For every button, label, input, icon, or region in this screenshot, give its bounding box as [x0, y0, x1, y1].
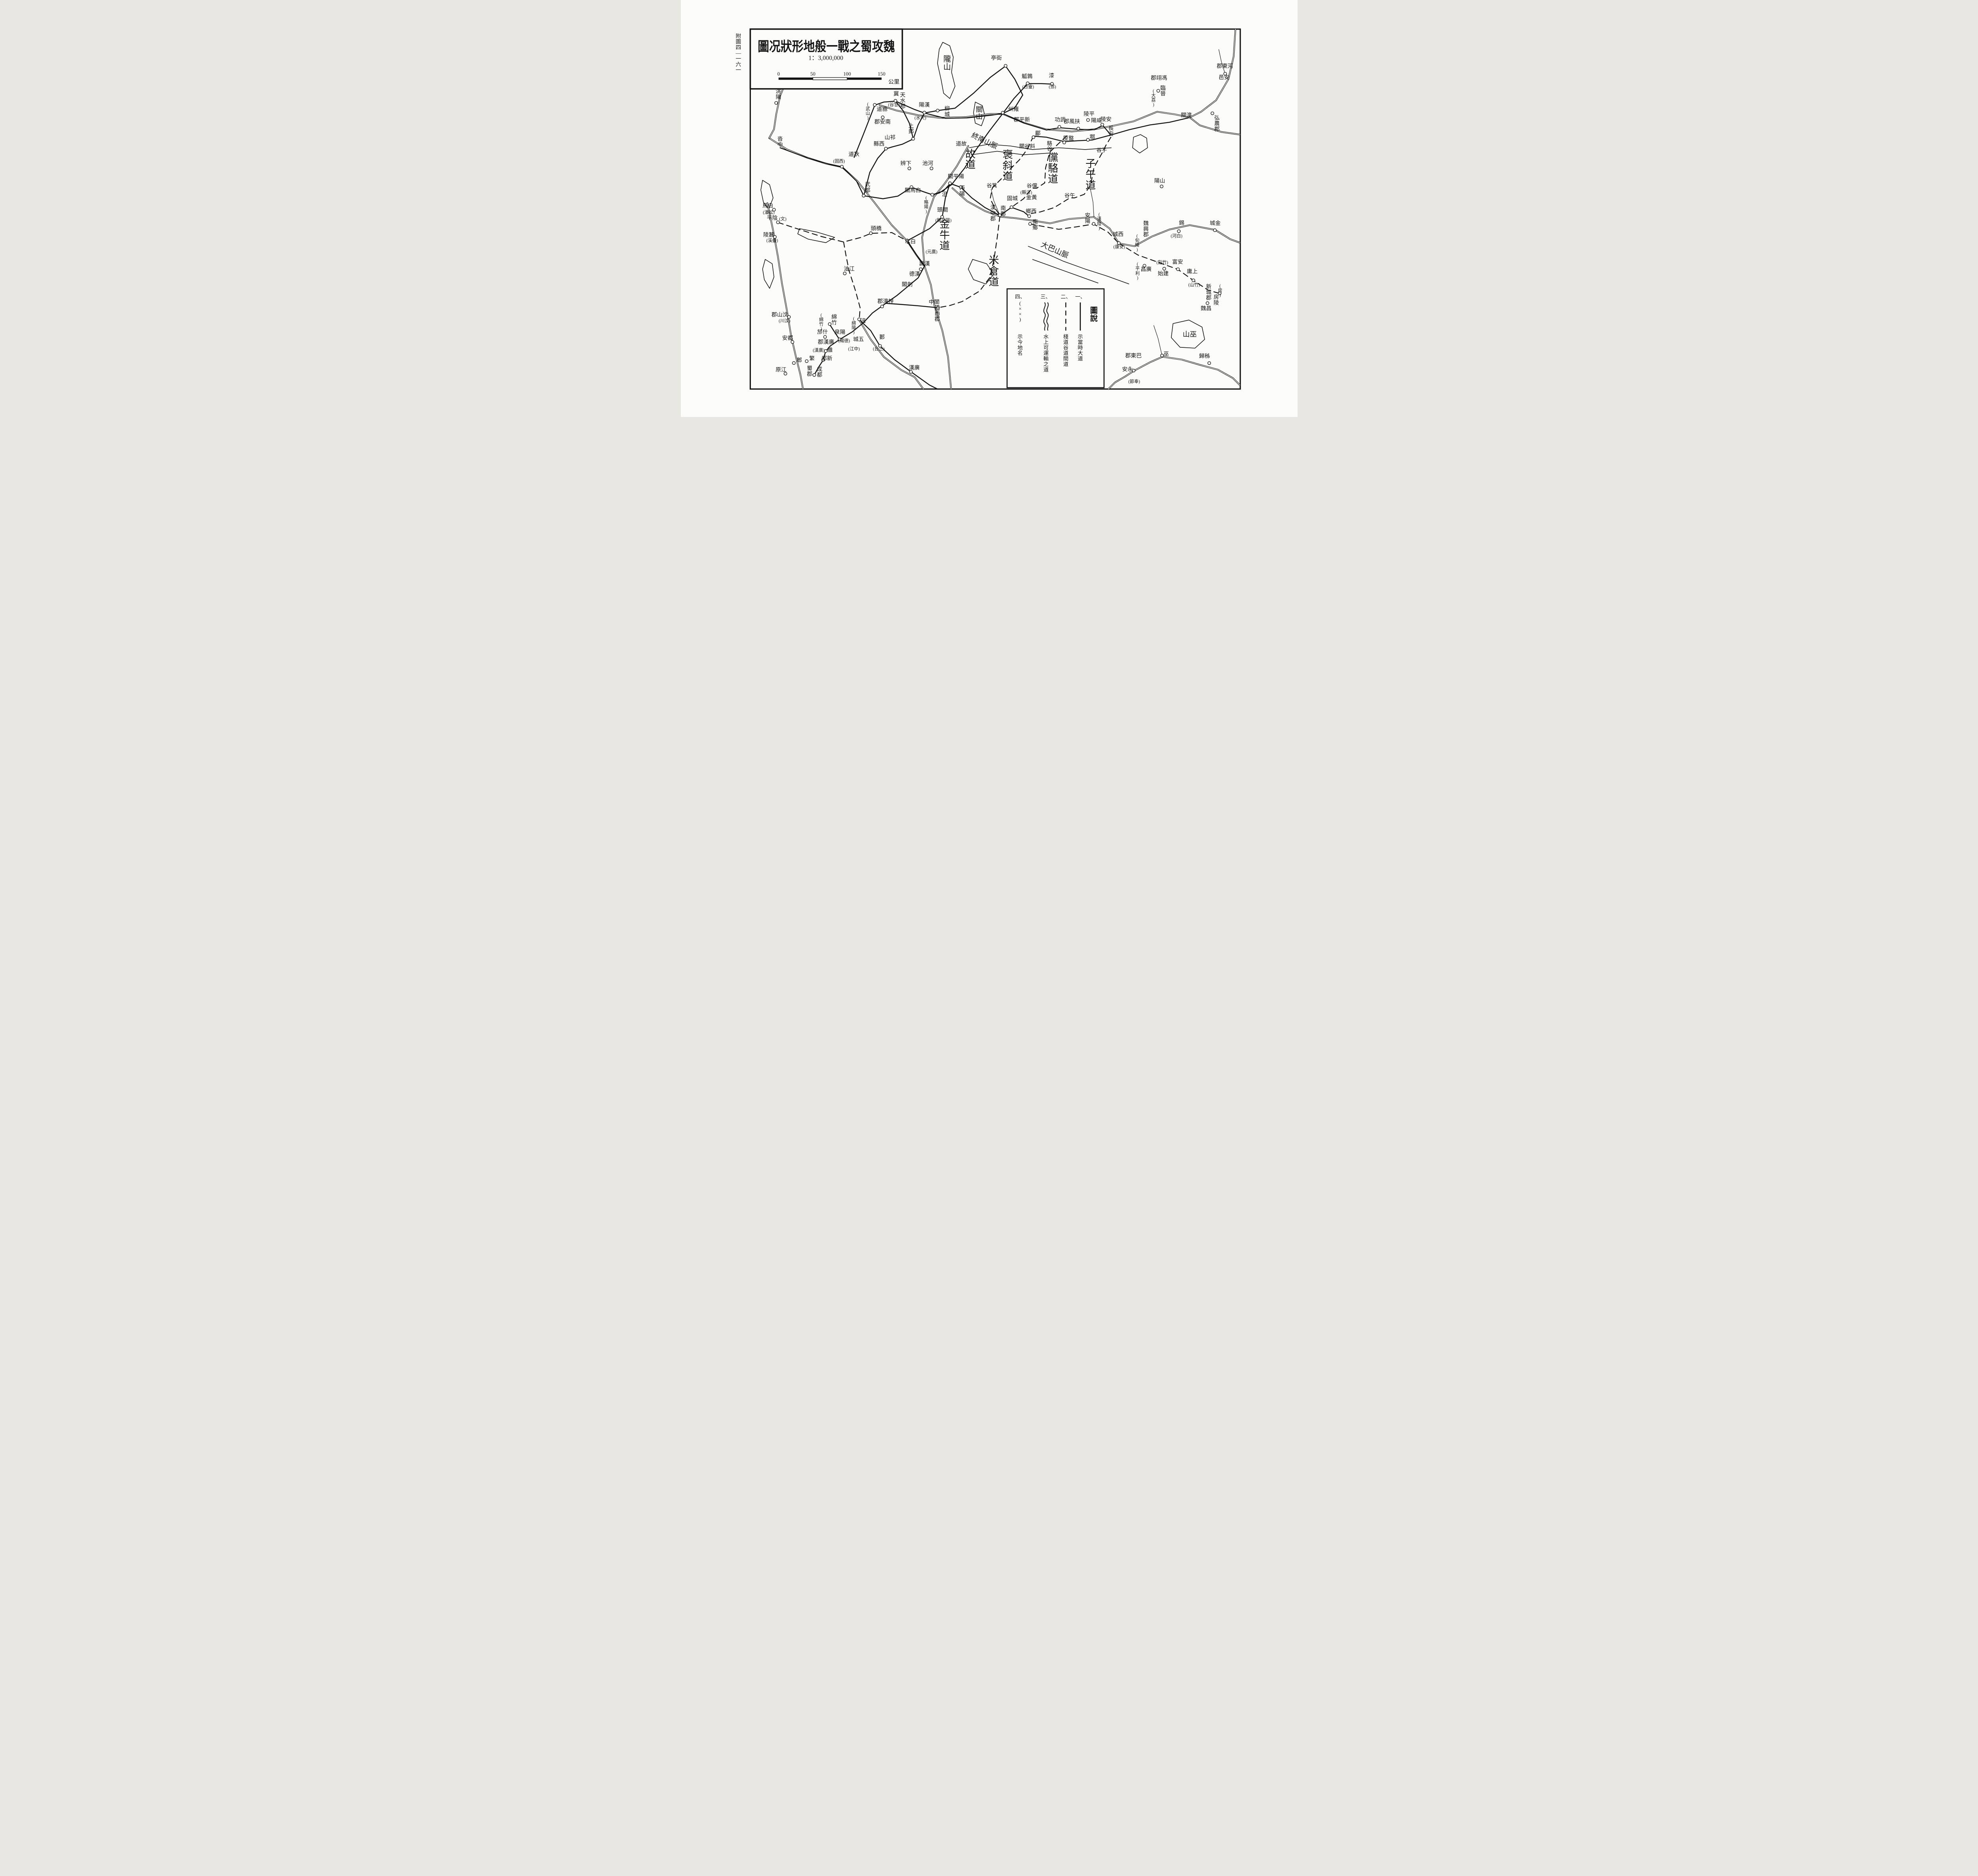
river-channel-4 [769, 138, 925, 266]
legend-num-1: 一、 [1075, 294, 1085, 300]
place-label-漆: 漆 [1049, 72, 1054, 78]
place-1-沓中: 沓中 [777, 136, 783, 148]
place-label-廣漢: 漢廣 [909, 364, 920, 371]
place-label-陽平關: 關平陽 [947, 173, 964, 179]
place-31-漆: 漆(邠) [1049, 72, 1056, 89]
legend-label-3: 水上可運輸之道 [1043, 334, 1048, 373]
modern-name-白河: (河白) [1171, 233, 1182, 239]
place-70-金牛道: 金牛道 [939, 219, 949, 252]
place-label-金城: 城金 [1210, 220, 1221, 226]
place-88-新都: 都新 [821, 356, 832, 362]
river-channel-5 [1108, 357, 1239, 389]
place-25-街亭: 亭街 [991, 55, 1007, 67]
stream-11 [1154, 325, 1162, 355]
place-29-雍州: 州雍 [1001, 106, 1019, 114]
place-marker-南鄉 [1029, 222, 1032, 225]
place-6-蠶陵: 陵蠶(溪疊) [763, 232, 778, 243]
place-marker-廣漢 [909, 370, 912, 373]
place-marker-汶山郡 [787, 315, 790, 318]
place-label-陰平: 平陰 [767, 215, 778, 221]
modern-name-旬陽: (旬陽) [1135, 234, 1139, 252]
place-marker-橋頭 [869, 232, 872, 235]
place-0-洮陽: 洮陽 [775, 89, 781, 104]
place-marker-沮 [930, 193, 934, 196]
map-page: 附圖四—一六一 洮陽沓中道狄(固西)馬白(潘松)平陰(文)陵蠶(溪疊)郡山汶(川… [681, 0, 1298, 417]
place-81-涪: 涪(綿陽) [851, 316, 866, 335]
place-58-午谷: 谷午 [1064, 192, 1075, 198]
place-95-廣漢: 漢廣 [909, 364, 920, 373]
margin-label: 附圖四—一六一 [735, 33, 741, 73]
place-103-竹谿: (谿竹) [1156, 260, 1168, 270]
modern-name-甘谷: (谷甘) [888, 102, 900, 108]
place-98-魏興郡: 魏興郡(旬陽) [1135, 220, 1148, 252]
place-label-雍州: 州雍 [1008, 106, 1019, 112]
legend-label-1: 示當時大道 [1078, 334, 1083, 362]
place-label-安陵: 陵安 [1101, 116, 1112, 122]
place-label-南安郡: 郡安南 [874, 119, 890, 125]
place-label-蠶陵: 陵蠶 [763, 232, 774, 238]
place-marker-什邡 [823, 335, 826, 339]
modern-name-天水: (水天) [914, 115, 926, 120]
place-101-上庸: 庸上(山竹) [1186, 268, 1200, 287]
place-label-魏興郡: 魏興郡 [1143, 220, 1148, 238]
place-label-午谷: 谷午 [1064, 192, 1075, 198]
place-marker-武山 [873, 103, 876, 106]
place-label-新都: 都新 [821, 356, 832, 362]
place-label-西鄉: 鄉西 [1025, 208, 1036, 214]
place-marker-下辨 [908, 167, 911, 170]
place-label-綿竹: 綿竹 [831, 314, 837, 326]
place-marker-竹谿 [1163, 267, 1166, 270]
place-label-柳城: 柳城 [944, 105, 950, 117]
place-73-白水: 水白 [905, 239, 916, 244]
byway-dashed-26 [778, 222, 907, 242]
place-51-斜谷關: 關谷斜 [1019, 143, 1035, 149]
place-39-盩厔: 厔盩 [1063, 135, 1074, 144]
place-40-郿: 郿 [1032, 130, 1040, 138]
place-marker-雒 [824, 350, 827, 353]
place-label-平陵: 陵平 [1084, 111, 1095, 117]
place-75-漢德: 德漢 [909, 271, 920, 277]
map-scale-ratio: 1：3,000,000 [808, 55, 843, 61]
modern-name-竹山: (山竹) [1188, 282, 1200, 288]
place-22-南安郡: 郡安南 [874, 119, 890, 125]
place-label-河池: 池河 [922, 160, 933, 166]
modern-name-廣漢: (漢廣) [813, 347, 824, 353]
place-35-咸陽: 陽咸 [1091, 117, 1102, 123]
place-104-廣昌: 昌廣(平利) [1135, 262, 1151, 280]
place-91-蜀郡: 蜀郡 [807, 366, 812, 377]
place-23-武山: (武山) [866, 102, 876, 121]
place-label-河東郡: 郡東河 [1216, 63, 1233, 69]
place-105-建始: 始建 [1158, 271, 1169, 277]
place-12-河池: 池河 [922, 160, 933, 170]
place-label-鶉觚: 觚鶉 [1021, 74, 1033, 80]
place-49-故道: 故道 [965, 148, 975, 171]
place-label-西城: 城西 [1112, 231, 1124, 237]
place-label-關山: 關山 [976, 106, 982, 120]
place-label-安富: 富安 [1172, 258, 1183, 265]
place-marker-梓潼郡 [881, 305, 884, 308]
place-marker-漢陽 [923, 111, 926, 114]
place-marker-街亭 [1004, 64, 1007, 68]
modern-name-略陽: (略陽) [924, 195, 928, 214]
place-45-河東郡: 郡東河 [1216, 63, 1233, 69]
place-marker-鶉觚 [1026, 82, 1029, 85]
place-20-天水郡: 天水郡 [900, 92, 906, 110]
place-label-汶山郡: 郡山汶 [771, 311, 788, 318]
place-label-巴東郡: 郡東巴 [1125, 353, 1142, 359]
place-59-山陽: 陽山 [1154, 178, 1165, 188]
place-marker-平陵 [1086, 118, 1089, 121]
modern-name-西固: (固西) [833, 159, 845, 164]
modern-name-綿竹: (綿竹) [819, 313, 823, 332]
place-marker-金城 [1213, 229, 1216, 232]
modern-name-汶川: (川汶) [779, 318, 790, 323]
place-label-房陵: 房陵 [1213, 294, 1219, 306]
place-label-儻谷: 谷儻 [1027, 183, 1037, 189]
place-marker-豲道 [881, 116, 884, 119]
place-24-隴山: 隴山 [943, 55, 951, 72]
place-112-巴東郡: 郡東巴 [1125, 353, 1142, 359]
place-label-南鄉: 南鄉 [1032, 219, 1038, 231]
place-5-陰平: 平陰(文) [767, 215, 786, 224]
place-marker-安陵 [1101, 123, 1104, 126]
place-label-郿: 郿 [1035, 130, 1040, 136]
byway-dashed-27 [843, 242, 860, 320]
place-marker-雍州 [1001, 111, 1004, 114]
place-2-狄道: 道狄 [848, 152, 859, 157]
place-label-咸陽: 陽咸 [1091, 117, 1102, 123]
place-71-米倉道: 米倉道 [989, 255, 999, 288]
place-marker-西縣 [884, 147, 887, 150]
place-label-臨晉: 臨晉 [1160, 85, 1165, 97]
modern-name-洋縣: (縣洋) [1020, 189, 1032, 195]
modern-name-文: (文) [779, 216, 786, 222]
scale-tick-100: 100 [843, 71, 851, 77]
place-label-繁: 繁 [809, 356, 815, 362]
place-label-白水: 水白 [905, 239, 916, 244]
place-marker-昌魏 [1206, 302, 1209, 305]
road-3 [1111, 118, 1188, 135]
modern-name-竹谿: (谿竹) [1156, 260, 1168, 265]
place-label-秭歸: 歸秭 [1199, 352, 1210, 359]
place-36-安陵: 陵安 [1101, 116, 1112, 126]
place-label-扶風郡: 郡風扶 [1064, 118, 1080, 124]
place-marker-河池 [930, 167, 933, 170]
place-label-終南山脈: 終南山脈 [970, 131, 999, 150]
place-label-黃金: 金黃 [1026, 195, 1037, 201]
place-marker-西城 [1117, 242, 1120, 245]
place-marker-郿 [1032, 136, 1035, 139]
road-9 [864, 139, 913, 196]
river-7 [859, 320, 923, 389]
place-111-秭歸: 歸秭 [1199, 352, 1211, 364]
road-2 [924, 66, 1005, 113]
place-marker-郫 [792, 362, 795, 365]
place-label-駱谷: 駱谷 [1047, 140, 1052, 152]
place-17-上邽: 上邽 [908, 123, 915, 140]
place-label-陽泉: 泉陽 [834, 329, 845, 335]
place-label-巴西郡: 巴西郡 [934, 305, 940, 322]
place-label-成都: 成都 [817, 366, 822, 378]
place-84-綿竹: (綿竹) [819, 313, 823, 332]
place-marker-盩厔 [1063, 141, 1066, 144]
place-label-新城郡: 新城郡 [1206, 284, 1211, 301]
place-43-潼關: 關潼 [1181, 112, 1192, 118]
byway-dashed-28 [1030, 224, 1118, 243]
place-62-漢中郡: 漢中郡 [990, 205, 996, 222]
place-label-豲道: 道豲 [877, 106, 888, 112]
place-48-故道: 道故 [955, 141, 966, 147]
place-label-天水郡: 天水郡 [900, 92, 906, 110]
place-label-梓潼郡: 郡潼梓 [877, 298, 894, 304]
legend-label-4: 示今地名 [1017, 334, 1022, 356]
place-label-安陽: 安陽 [1085, 212, 1090, 224]
place-marker-成都 [813, 373, 816, 377]
place-label-蜀郡: 蜀郡 [807, 366, 812, 377]
place-marker-錫 [1177, 230, 1180, 233]
place-label-永安: 安永 [1122, 366, 1133, 372]
place-55-儻谷: 谷儻 [1027, 183, 1037, 189]
place-marker-陽平關 [948, 182, 951, 185]
place-37-長安: 長安 [1108, 125, 1114, 137]
place-46-安邑: 邑安 [1218, 72, 1230, 81]
place-label-白馬: 馬白 [762, 203, 773, 209]
place-21-豲道: 道豲 [877, 106, 888, 119]
place-marker-山陽 [1160, 185, 1163, 188]
place-label-箕谷: 谷箕 [987, 182, 997, 188]
river-4 [769, 138, 925, 266]
place-107-房陵: 房陵(房) [1213, 284, 1222, 306]
place-marker-扶風郡 [1076, 127, 1080, 130]
modern-name-廣元: (元廣) [925, 249, 937, 254]
place-marker-關頭 [940, 216, 944, 219]
place-label-武都: 武都 [865, 182, 870, 193]
place-57-子午道: 子午道 [1085, 158, 1095, 191]
place-80-巴西郡: 巴西郡 [934, 305, 940, 322]
place-label-巫山: 山巫 [1182, 330, 1197, 338]
place-marker-臨晉 [1157, 89, 1160, 93]
scale-tick-0: 0 [777, 71, 779, 77]
place-label-城固: 固城 [1007, 195, 1018, 201]
map-canvas: 附圖四—一六一 洮陽沓中道狄(固西)馬白(潘松)平陰(文)陵蠶(溪疊)郡山汶(川… [681, 0, 1298, 417]
place-label-閬中: 中閬 [928, 299, 940, 305]
place-76-劍閣: 閣劍 [902, 281, 913, 288]
place-label-江油: 油江 [843, 266, 854, 272]
place-label-南鄭: 南鄭 [1000, 205, 1006, 217]
place-label-郪: 郪 [879, 334, 885, 340]
legend-num-4: 四、 [1015, 294, 1025, 300]
place-109-巫山: 山巫 [1182, 330, 1197, 338]
scale-unit: 公里 [888, 79, 899, 85]
place-15-祁山: 山祁 [885, 135, 896, 140]
scale-tick-50: 50 [810, 71, 815, 77]
place-label-長安: 長安 [1108, 125, 1114, 137]
byway-dashed-29 [1119, 243, 1220, 294]
place-marker-綿竹 [828, 322, 831, 326]
place-label-祁山: 山祁 [885, 135, 896, 140]
place-66-西鄉: 鄉西 [1025, 208, 1036, 218]
place-marker-安富 [1176, 268, 1179, 271]
place-110-巫: 巫 [1160, 351, 1169, 357]
place-label-潼關: 關潼 [1181, 112, 1192, 118]
place-label-五城: 城五 [853, 336, 864, 342]
place-label-馮翊郡: 郡翊馮 [1150, 75, 1167, 81]
place-label-狄道: 道狄 [848, 152, 859, 157]
place-30-新平郡: 郡平新 [1014, 117, 1030, 123]
place-marker-武功 [1058, 125, 1061, 129]
place-83-綿竹: 綿竹 [828, 314, 837, 326]
place-marker-秭歸 [1207, 362, 1211, 365]
modern-name-大荔: (大荔) [1151, 89, 1156, 108]
place-106-新城郡: 新城郡 [1206, 284, 1211, 301]
modern-name-平利: (平利) [1135, 262, 1139, 280]
place-label-金牛道: 金牛道 [939, 219, 949, 252]
modern-name-邠: (邠) [1049, 84, 1056, 89]
place-52-箕谷: 谷箕 [987, 182, 997, 188]
place-label-巫: 巫 [1163, 351, 1169, 357]
place-label-沔陽: 沔陽 [959, 185, 965, 197]
place-108-昌魏: 魏昌 [1200, 302, 1211, 312]
mountain-contour-5 [1032, 260, 1098, 283]
place-marker-江油 [843, 272, 846, 275]
place-28-鶉觚: 觚鶉(台靈) [1021, 74, 1034, 89]
place-label-故道: 故道 [965, 148, 975, 171]
place-marker-洮陽 [775, 101, 778, 104]
place-18-漢陽: 陽漢(水天) [914, 102, 930, 120]
modern-name-奉節: (節奉) [1128, 379, 1140, 384]
place-61-沔陽: 沔陽 [959, 185, 964, 197]
place-label-劍閣: 閣劍 [902, 281, 913, 288]
legend-num-3: 三、 [1040, 294, 1051, 300]
place-87-雒: 雒(漢廣) [813, 347, 833, 353]
place-marker-漢壽 [919, 268, 922, 271]
place-marker-武都 [862, 194, 865, 197]
modern-name-疊溪: (溪疊) [766, 238, 778, 243]
place-label-儻駱道: 儻駱道 [1048, 152, 1058, 185]
scale-bar-seg1 [779, 78, 813, 80]
place-label-都安: 安都 [782, 335, 793, 341]
place-85-什邡: 邡什 [817, 329, 828, 339]
place-label-建始: 始建 [1158, 271, 1169, 277]
place-102-安富: 富安 [1172, 258, 1183, 271]
legend-label-2: 棧道谷道間道 [1063, 334, 1068, 367]
modern-name-中江: (江中) [848, 347, 860, 352]
place-56-子谷: 谷子 [1096, 147, 1107, 153]
place-11-下辨: 辨下 [900, 160, 911, 170]
modern-name-德陽: (陽德) [838, 338, 850, 343]
place-marker-冀 [894, 99, 897, 102]
scale-bar-seg3 [847, 78, 881, 80]
place-label-米倉道: 米倉道 [989, 255, 999, 288]
place-77-江油: 油江 [843, 266, 854, 275]
place-label-雒: 雒 [827, 347, 833, 353]
place-label-錫: 錫 [1178, 220, 1184, 226]
title-box: 圖况狀形地般一戰之蜀攻魏 1：3,000,000 0 50 100 150 公里 [750, 29, 902, 89]
place-marker-上庸 [1192, 279, 1195, 282]
place-label-沮: 沮 [942, 191, 947, 197]
place-label-江原: 原江 [775, 367, 786, 373]
place-94-五城: 城五(江中) [848, 336, 864, 352]
place-label-廣漢郡: 郡漢廣 [818, 339, 834, 345]
place-label-涪: 涪 [860, 318, 866, 324]
place-label-廣昌: 昌廣 [1141, 266, 1152, 272]
place-47-終南山脈: 終南山脈 [970, 131, 999, 150]
place-label-隴山: 隴山 [943, 55, 951, 72]
place-27-關山: 關山 [976, 106, 982, 120]
place-label-鄠: 鄠 [1089, 134, 1095, 140]
road-18 [859, 320, 938, 389]
place-label-昌魏: 魏昌 [1200, 305, 1211, 311]
place-label-安邑: 邑安 [1218, 74, 1230, 80]
legend-num-2: 二、 [1061, 294, 1071, 300]
river-5 [1108, 357, 1239, 389]
scale-bar-seg2 [813, 78, 847, 80]
place-19-冀: 冀(谷甘) [888, 91, 900, 107]
place-8-都安: 安都 [782, 335, 794, 343]
place-86-廣漢郡: 郡漢廣 [818, 339, 834, 345]
modern-name-松潘: (潘松) [763, 210, 775, 215]
river-channel-3 [922, 146, 968, 389]
legend-box: 圖說 一、 示當時大道 二、 棧道谷道間道 三、 水上可運輸之道 四、 (××)… [1007, 289, 1104, 388]
place-53-駱谷: 駱谷 [1047, 140, 1052, 152]
place-label-漢陽: 陽漢 [919, 102, 930, 108]
modern-name-安康: (康安) [1113, 244, 1125, 250]
legend-title: 圖說 [1090, 306, 1097, 323]
place-label-洮陽: 洮陽 [775, 89, 781, 100]
place-50-褒斜道: 褒斜道 [1002, 149, 1013, 182]
mountain-contour-4 [1028, 246, 1129, 284]
place-14-白馬關: 關馬白 [904, 186, 921, 193]
place-label-褒斜道: 褒斜道 [1002, 149, 1013, 182]
mountain-contour-10 [1132, 135, 1147, 153]
place-label-郫: 郫 [796, 357, 802, 363]
place-74-漢壽: 壽漢(元廣) [919, 249, 938, 271]
place-label-街亭: 亭街 [991, 55, 1002, 61]
place-64-城固: 固城 [1007, 195, 1018, 209]
place-marker-安陽 [1092, 222, 1095, 225]
place-label-沓中: 沓中 [777, 136, 783, 148]
place-label-什邡: 邡什 [817, 329, 828, 335]
place-96-安陽: 安陽(漢陰) [1085, 212, 1101, 231]
place-16-西縣: 縣西 [873, 141, 887, 150]
place-marker-弘農郡 [1211, 112, 1214, 115]
place-7-汶山郡: 郡山汶(川汶) [771, 311, 790, 323]
place-63-南鄭: 南鄭 [998, 205, 1006, 217]
place-78-梓潼郡: 郡潼梓 [877, 298, 894, 308]
place-label-白馬關: 關馬白 [904, 188, 921, 193]
place-marker-陰平 [776, 221, 779, 224]
place-54-儻駱道: 儻駱道 [1048, 152, 1058, 185]
place-26-柳城: 柳城 [936, 105, 950, 117]
place-marker-涪 [858, 318, 861, 321]
road-7 [854, 101, 896, 157]
stream-12 [1218, 49, 1225, 74]
place-label-故道: 道故 [955, 141, 966, 147]
place-marker-繁 [805, 360, 808, 363]
place-marker-柳城 [936, 109, 939, 112]
modern-name-三台: (台三) [873, 346, 885, 352]
place-label-子午道: 子午道 [1085, 158, 1095, 191]
place-42-臨晉: 臨晉 [1157, 85, 1166, 97]
map-title: 圖况狀形地般一戰之蜀攻魏 [758, 39, 895, 54]
place-60-陽平關: 關平陽 [947, 173, 964, 185]
place-label-下辨: 辨下 [900, 160, 911, 166]
place-label-弘農郡: 弘農郡 [1214, 115, 1220, 132]
place-97-西城: 城西(康安) [1112, 231, 1125, 249]
place-marker-鄠 [1086, 138, 1089, 142]
